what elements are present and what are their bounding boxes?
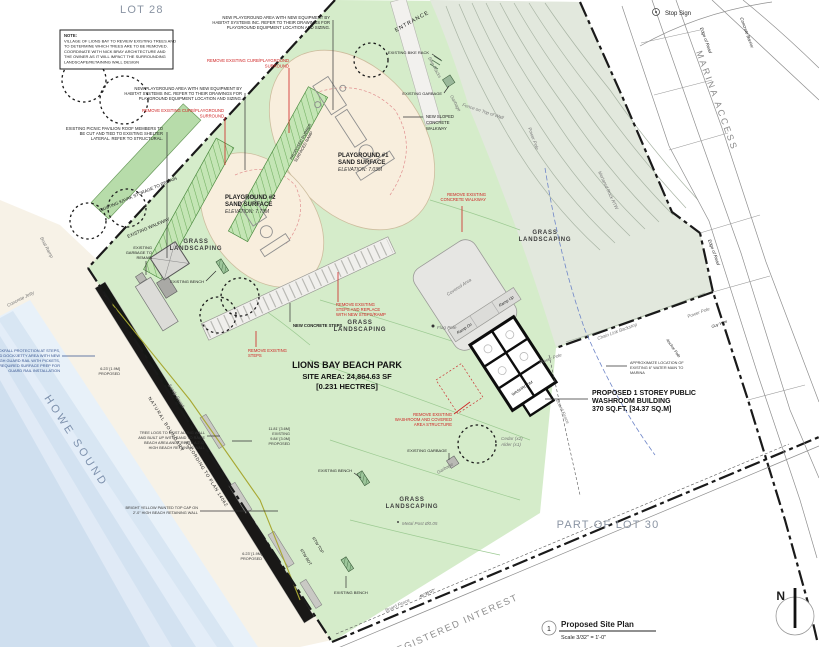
svg-text:SITE AREA: 24,864.63 SF: SITE AREA: 24,864.63 SF	[302, 372, 392, 381]
yellow-cap-note: BRIGHT YELLOW PAINTED TOP CAP ON 2'-0" H…	[125, 506, 198, 515]
svg-text:APPROXIMATE LOCATION OF: APPROXIMATE LOCATION OF	[630, 361, 684, 365]
svg-text:PLAYGROUND #1: PLAYGROUND #1	[338, 153, 389, 159]
flag-pole-label: Flag Pole	[437, 325, 457, 330]
svg-text:ELEVATION: 7.73M: ELEVATION: 7.73M	[225, 209, 270, 215]
svg-text:LANDSCAPING: LANDSCAPING	[334, 327, 387, 333]
bench-label-1: EXISTING BENCH	[170, 279, 204, 284]
svg-text:COORDINATE WITH NICK BRAY ARCH: COORDINATE WITH NICK BRAY ARCHITECTURE A…	[64, 49, 166, 54]
svg-text:PLAYGROUND EQUIPMENT LOCATION: PLAYGROUND EQUIPMENT LOCATION AND SIZING…	[227, 25, 330, 30]
svg-text:Cedar (x2): Cedar (x2)	[501, 436, 523, 441]
svg-text:PROPOSED: PROPOSED	[98, 372, 120, 376]
svg-text:WALKWAY: WALKWAY	[426, 126, 447, 131]
existing-garbage-label-top: EXISTING GARBAGE	[402, 91, 442, 96]
svg-text:STEPS: STEPS	[248, 353, 262, 358]
svg-text:HIGH BEACH RETAINING WALL: HIGH BEACH RETAINING WALL	[149, 446, 205, 450]
svg-text:CONCRETE: CONCRETE	[426, 120, 450, 125]
red-note-curb-1: REMOVE EXISTING CURB/PLAYGROUND SURROUND	[207, 58, 289, 69]
svg-text:SURROUND: SURROUND	[265, 64, 289, 69]
existing-garbage-label-bottom: EXISTING GARBAGE	[407, 448, 447, 453]
pavilion-note: EXISTING PICNIC PAVILION ROOF MEMBERS TO…	[66, 126, 164, 141]
drawing-title: Proposed Site Plan	[561, 620, 634, 629]
svg-text:370 SQ.FT. [34.37 SQ.M]: 370 SQ.FT. [34.37 SQ.M]	[592, 406, 671, 413]
svg-text:SAND SURFACE: SAND SURFACE	[225, 202, 272, 208]
svg-text:6.23' [1.9M]: 6.23' [1.9M]	[242, 552, 262, 556]
svg-text:GRASS: GRASS	[183, 239, 208, 245]
north-arrow: N	[776, 588, 814, 635]
svg-text:TO DETERMINE WHICH TREES ARE T: TO DETERMINE WHICH TREES ARE TO BE REMOV…	[64, 44, 168, 49]
svg-text:9.84' [3.0M]: 9.84' [3.0M]	[270, 437, 290, 441]
svg-text:2'-0" HIGH BEACH RETAINING WAL: 2'-0" HIGH BEACH RETAINING WALL	[133, 511, 198, 515]
board-fence-label-east: Board Fence	[555, 398, 570, 424]
dimension-2a: 6.23' [1.9M] PROPOSED	[98, 367, 120, 376]
svg-text:Metal Post Ø0.05: Metal Post Ø0.05	[402, 521, 438, 526]
metal-post-label: Metal Post Ø0.05	[397, 521, 438, 526]
power-pole-label-2: Power Pole	[687, 306, 711, 319]
svg-text:PLAYGROUND #2: PLAYGROUND #2	[225, 195, 276, 201]
rockfall-note: ADD ROCKFALL PROTECTION AT STEPS, RAMP A…	[0, 348, 60, 373]
svg-text:LANDSCAPING: LANDSCAPING	[386, 504, 439, 510]
playground-note-2: NEW PLAYGROUND AREA WITH NEW EQUIPMENT B…	[124, 86, 242, 101]
svg-text:BRIGHT YELLOW PAINTED TOP CAP: BRIGHT YELLOW PAINTED TOP CAP ON	[125, 506, 198, 510]
svg-text:GRASS: GRASS	[347, 320, 372, 326]
svg-text:EXISTING 6" WATER MAIN TO: EXISTING 6" WATER MAIN TO	[630, 366, 683, 370]
washroom-callout: PROPOSED 1 STOREY PUBLIC WASHROOM BUILDI…	[592, 390, 696, 413]
board-fence-line-east	[549, 355, 580, 495]
site-plan-canvas: Ramp Dn Ramp Up WASHROOM	[0, 0, 819, 647]
svg-text:WASHROOM BUILDING: WASHROOM BUILDING	[592, 398, 671, 405]
svg-text:[0.231 HECTRES]: [0.231 HECTRES]	[316, 382, 378, 391]
svg-text:GRASS: GRASS	[532, 230, 557, 236]
playground-1-label: PLAYGROUND #1 SAND SURFACE ELEVATION: 7.…	[338, 153, 389, 173]
svg-text:11.81' [3.6M]: 11.81' [3.6M]	[268, 427, 290, 431]
svg-text:PLAYGROUND EQUIPMENT LOCATION: PLAYGROUND EQUIPMENT LOCATION AND SIZING…	[139, 96, 242, 101]
water-main-note: APPROXIMATE LOCATION OF EXISTING 6" WATE…	[630, 361, 684, 375]
svg-text:SURROUND: SURROUND	[200, 114, 224, 119]
lot30-label: PART OF LOT 30	[557, 519, 660, 531]
anchor-pole-label: Anchor Pole	[665, 337, 683, 359]
bench-label-2: EXISTING BENCH	[318, 468, 352, 473]
svg-text:PROPOSED: PROPOSED	[240, 557, 262, 561]
bench-label-3: EXISTING BENCH	[334, 590, 368, 595]
svg-text:CONCRETE WALKWAY: CONCRETE WALKWAY	[441, 197, 487, 202]
svg-text:ELEVATION: 7.03M: ELEVATION: 7.03M	[338, 167, 383, 173]
dimension-1: 11.81' [3.6M] EXISTING 9.84' [3.0M] PROP…	[268, 427, 290, 446]
lot28-label: LOT 28	[120, 4, 164, 16]
site-plan-drawing: Ramp Dn Ramp Up WASHROOM	[0, 0, 819, 647]
svg-text:PROPOSED: PROPOSED	[268, 442, 290, 446]
tree-review-note-box: NOTE: VILLAGE OF LIONS BAY TO REVIEW EXI…	[60, 30, 176, 69]
svg-text:WITH NEW STEPS/RAMP: WITH NEW STEPS/RAMP	[336, 312, 386, 317]
red-note-walkway: REMOVE EXISTING CONCRETE WALKWAY	[441, 192, 487, 202]
cedar-alder-label: Cedar (x2) Alder (x1)	[500, 436, 523, 447]
svg-text:6.23' [1.9M]: 6.23' [1.9M]	[100, 367, 120, 371]
flag-pole-dot	[432, 325, 435, 328]
svg-text:THE OWNER AS IT WILL IMPACT TH: THE OWNER AS IT WILL IMPACT THE SURROUND…	[64, 54, 166, 59]
existing-bike-rack-label: EXISTING BIKE RACK	[388, 50, 429, 55]
svg-text:LANDSCAPE/RETAINING WALL DESIG: LANDSCAPE/RETAINING WALL DESIGN	[64, 60, 139, 65]
svg-text:SAND SURFACE: SAND SURFACE	[338, 160, 385, 166]
drawing-scale: Scale 3/32" = 1'-0"	[561, 635, 606, 641]
svg-text:REMAIN: REMAIN	[136, 255, 152, 260]
dimension-2b: 6.23' [1.9M] PROPOSED	[240, 552, 262, 561]
svg-text:VILLAGE OF LIONS BAY TO REVIEW: VILLAGE OF LIONS BAY TO REVIEW EXISTING …	[64, 38, 176, 43]
svg-text:N: N	[776, 589, 785, 603]
concrete-barrier-label: Concrete Barrier	[739, 17, 755, 49]
svg-text:Alder (x1): Alder (x1)	[500, 442, 521, 447]
svg-text:Stop Sign: Stop Sign	[665, 11, 691, 17]
svg-text:LANDSCAPING: LANDSCAPING	[170, 246, 223, 252]
playground-2-label: PLAYGROUND #2 SAND SURFACE ELEVATION: 7.…	[225, 195, 276, 215]
svg-text:MARINA: MARINA	[630, 371, 645, 375]
guy-wire-label: Guy Wire	[711, 318, 729, 329]
svg-text:LANDSCAPING: LANDSCAPING	[519, 237, 572, 243]
svg-text:PROPOSED 1 STOREY PUBLIC: PROPOSED 1 STOREY PUBLIC	[592, 390, 696, 397]
svg-text:NEW SLOPED: NEW SLOPED	[426, 114, 454, 119]
stop-sign: Stop Sign	[653, 9, 692, 18]
svg-text:1: 1	[547, 626, 551, 633]
marina-access-label: MARINA ACCESS	[694, 49, 740, 152]
svg-text:LATERAL. REFER TO STRUCTURAL.: LATERAL. REFER TO STRUCTURAL.	[91, 136, 163, 141]
svg-text:EXISTING: EXISTING	[272, 432, 290, 436]
svg-text:GRASS: GRASS	[399, 497, 424, 503]
svg-text:GUARD RAIL INSTALLATION: GUARD RAIL INSTALLATION	[8, 368, 60, 373]
svg-text:NOTE:: NOTE:	[64, 33, 77, 38]
svg-text:REMOVE EXISTING CURB/PLAYGROUN: REMOVE EXISTING CURB/PLAYGROUND	[142, 108, 224, 113]
svg-text:REMOVE EXISTING CURB/PLAYGROUN: REMOVE EXISTING CURB/PLAYGROUND	[207, 58, 289, 63]
svg-text:AREA STRUCTURE: AREA STRUCTURE	[414, 422, 452, 427]
playground-note-1: NEW PLAYGROUND AREA WITH NEW EQUIPMENT B…	[212, 15, 330, 30]
svg-text:LIONS BAY BEACH PARK: LIONS BAY BEACH PARK	[292, 360, 402, 370]
drawing-title-block: 1 Proposed Site Plan Scale 3/32" = 1'-0"	[542, 620, 656, 641]
